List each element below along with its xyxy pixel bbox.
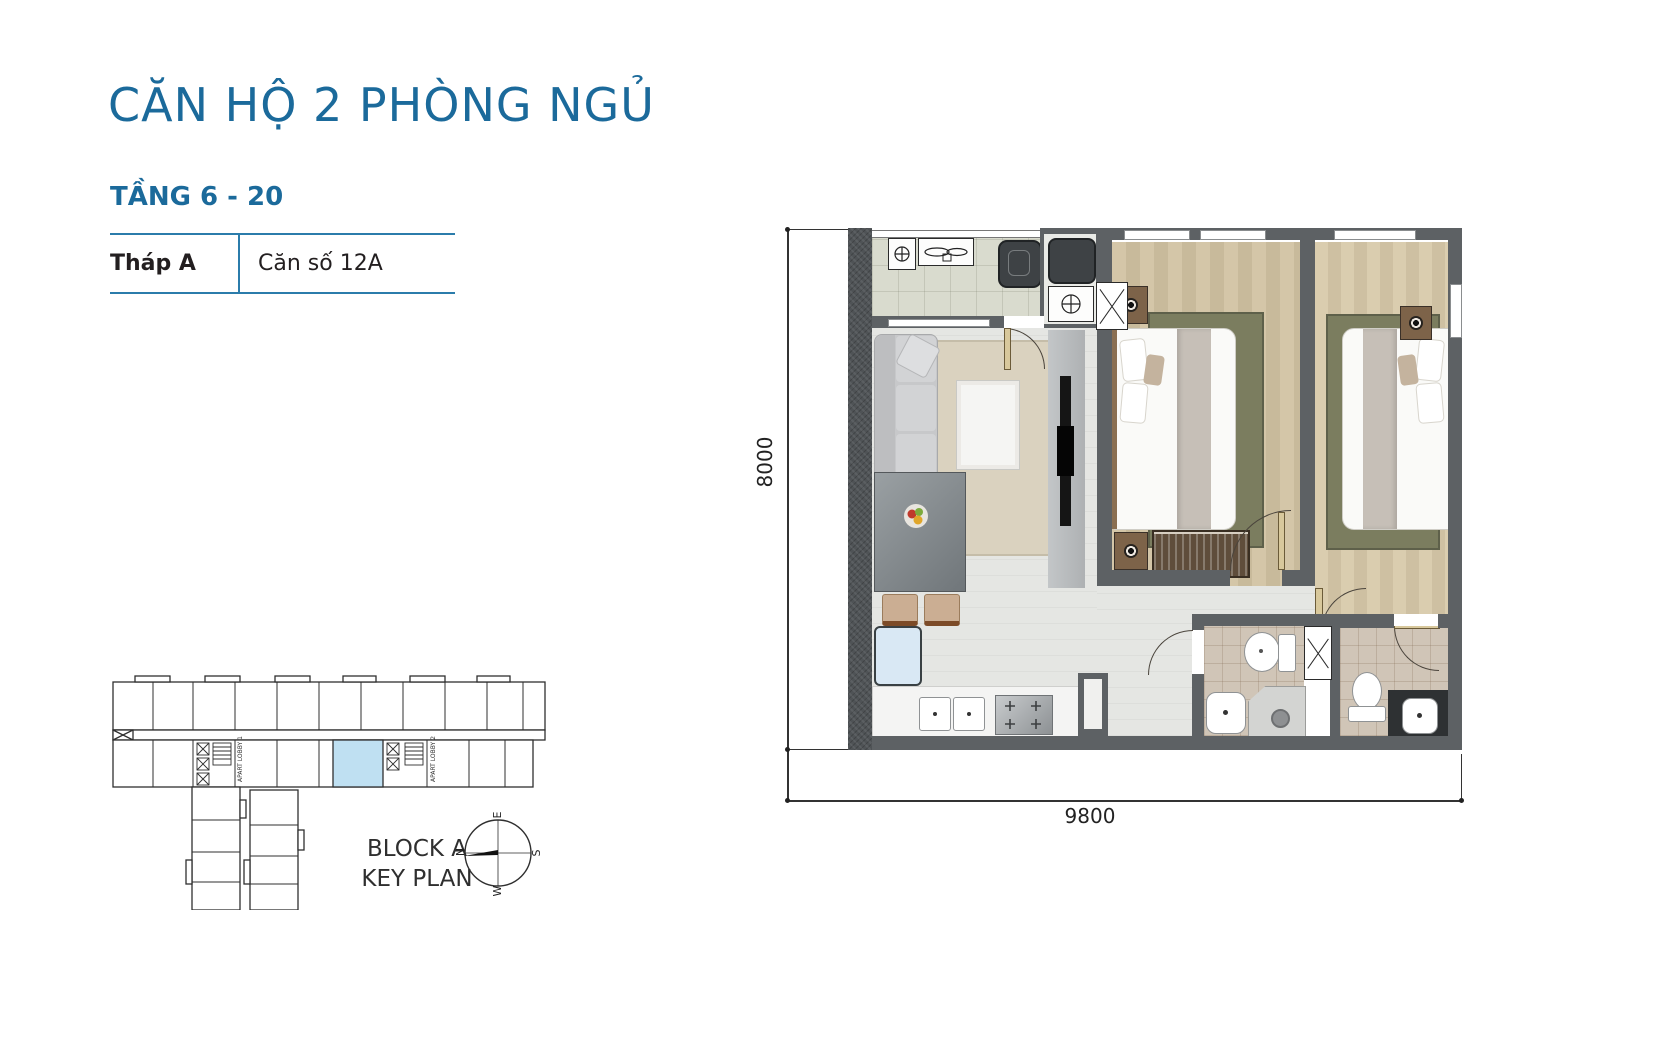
burner-icons bbox=[996, 696, 1052, 734]
bed-blanket bbox=[1177, 329, 1211, 529]
compass-s: S bbox=[530, 849, 541, 856]
bed-accent-pillow bbox=[1397, 354, 1419, 386]
sofa bbox=[874, 334, 938, 482]
wall-left-exterior bbox=[848, 228, 872, 750]
technical-shaft bbox=[1096, 282, 1128, 330]
unit-number-label: Căn số 12A bbox=[258, 235, 453, 292]
bedroom2-window bbox=[1334, 230, 1416, 240]
toilet-bowl-2 bbox=[1352, 672, 1382, 710]
bed-blanket bbox=[1363, 329, 1397, 529]
dimension-witness-right bbox=[1461, 754, 1462, 800]
sink-drain bbox=[933, 712, 937, 716]
wall-bathroom1-left-upper bbox=[1192, 614, 1204, 630]
bedroom1-window bbox=[1124, 230, 1190, 240]
lamp-icon bbox=[1409, 316, 1423, 330]
bed-pillow bbox=[1119, 382, 1148, 424]
dining-table bbox=[874, 472, 966, 592]
bathroom1-sink bbox=[1206, 692, 1246, 734]
toilet-tank-2 bbox=[1348, 706, 1386, 722]
bathroom-shaft bbox=[1304, 626, 1332, 680]
toilet-flush bbox=[1259, 649, 1263, 653]
fruit-plate-icon bbox=[903, 503, 929, 529]
bed-pillow bbox=[1415, 382, 1444, 424]
keyplan-wings bbox=[186, 787, 304, 910]
bathroom2-sink bbox=[1402, 698, 1438, 734]
compass-e: E bbox=[491, 811, 504, 818]
floor-range-label: TẦNG 6 - 20 bbox=[110, 182, 283, 212]
kitchen-stub-inner bbox=[1084, 679, 1102, 729]
tv-screen-center bbox=[1057, 426, 1074, 476]
dimension-label-width: 9800 bbox=[1040, 804, 1140, 828]
dimension-label-height: 8000 bbox=[753, 432, 777, 492]
kitchen-sink-left bbox=[919, 697, 951, 731]
sofa-back bbox=[875, 335, 895, 481]
washing-machine bbox=[998, 240, 1042, 288]
bathroom2-door-opening bbox=[1394, 614, 1438, 626]
toilet-tank-1 bbox=[1278, 634, 1296, 672]
dimension-dot bbox=[1459, 798, 1464, 803]
dining-chair bbox=[924, 594, 960, 626]
bedroom2-bed bbox=[1342, 328, 1450, 530]
compass-n: N bbox=[455, 848, 467, 856]
keyplan-top-row bbox=[113, 682, 545, 730]
bedroom2-sconce bbox=[1400, 306, 1432, 340]
ac-fan-icon bbox=[1049, 287, 1093, 321]
gas-stove bbox=[995, 695, 1053, 735]
keyplan-bottom-row bbox=[113, 740, 533, 787]
ac-outdoor-unit-2 bbox=[918, 238, 974, 266]
propeller-icon bbox=[919, 239, 973, 265]
wall-bedroom1-bottom-stub bbox=[1282, 570, 1300, 586]
highlighted-unit bbox=[333, 740, 383, 787]
unit-info-table: Tháp A Căn số 12A bbox=[110, 233, 455, 294]
table-divider bbox=[238, 235, 240, 292]
washing-machine-2 bbox=[1048, 238, 1096, 284]
dimension-witness-top bbox=[787, 229, 848, 230]
tower-label: Tháp A bbox=[110, 235, 238, 292]
balcony-railing bbox=[872, 230, 1040, 238]
dimension-dot bbox=[785, 227, 790, 232]
compass: E N S W bbox=[455, 810, 541, 896]
lamp-icon bbox=[1124, 544, 1138, 558]
wall-bathroom1-left-lower bbox=[1192, 674, 1204, 736]
bedroom1-door-leaf bbox=[1278, 512, 1285, 570]
page-title: CĂN HỘ 2 PHÒNG NGỦ bbox=[108, 78, 655, 132]
floor-plan bbox=[848, 228, 1462, 750]
wall-bedroom1-bedroom2 bbox=[1300, 228, 1315, 586]
toilet-bowl-1 bbox=[1244, 632, 1280, 672]
refrigerator bbox=[874, 626, 922, 686]
entry-door-opening bbox=[1004, 316, 1044, 328]
sliding-door-window bbox=[888, 319, 990, 327]
bedroom1-bed bbox=[1114, 328, 1236, 530]
entry-door-leaf bbox=[1004, 328, 1011, 370]
nightstand-bottom bbox=[1114, 532, 1148, 570]
bedroom1-window-2 bbox=[1200, 230, 1266, 240]
dining-chair bbox=[882, 594, 918, 626]
dimension-line-horizontal bbox=[787, 800, 1462, 802]
lobby1-label: APART LOBBY 1 bbox=[237, 736, 244, 782]
dimension-witness-bottom bbox=[787, 749, 848, 750]
kitchen-counter bbox=[872, 686, 1080, 738]
wall-bedroom1-bottom bbox=[1112, 570, 1230, 586]
bed-accent-pillow bbox=[1143, 354, 1165, 386]
wall-bottom-exterior bbox=[872, 736, 1462, 750]
dimension-line-vertical bbox=[787, 230, 789, 800]
sink-drain bbox=[967, 712, 971, 716]
sofa-cushion bbox=[896, 385, 936, 431]
bed-pillow bbox=[1415, 338, 1445, 382]
kitchen-sink-right bbox=[953, 697, 985, 731]
ac-outdoor-unit-1 bbox=[888, 238, 916, 270]
bedroom2-side-window bbox=[1450, 284, 1462, 338]
keyplan-corridor bbox=[113, 730, 545, 740]
tv-console bbox=[1048, 330, 1085, 588]
washing-machine-door bbox=[1008, 250, 1030, 276]
sink-drain bbox=[1223, 710, 1228, 715]
shower-drain-icon bbox=[1271, 709, 1290, 728]
sink-drain bbox=[1417, 713, 1422, 718]
dimension-dot bbox=[785, 747, 790, 752]
ac-fan-icon bbox=[889, 239, 915, 269]
compass-w: W bbox=[491, 885, 504, 896]
ac-outdoor-unit-3 bbox=[1048, 286, 1094, 322]
coffee-table bbox=[956, 380, 1020, 470]
lobby2-label: APART LOBBY 2 bbox=[430, 736, 437, 782]
dimension-dot bbox=[785, 798, 790, 803]
